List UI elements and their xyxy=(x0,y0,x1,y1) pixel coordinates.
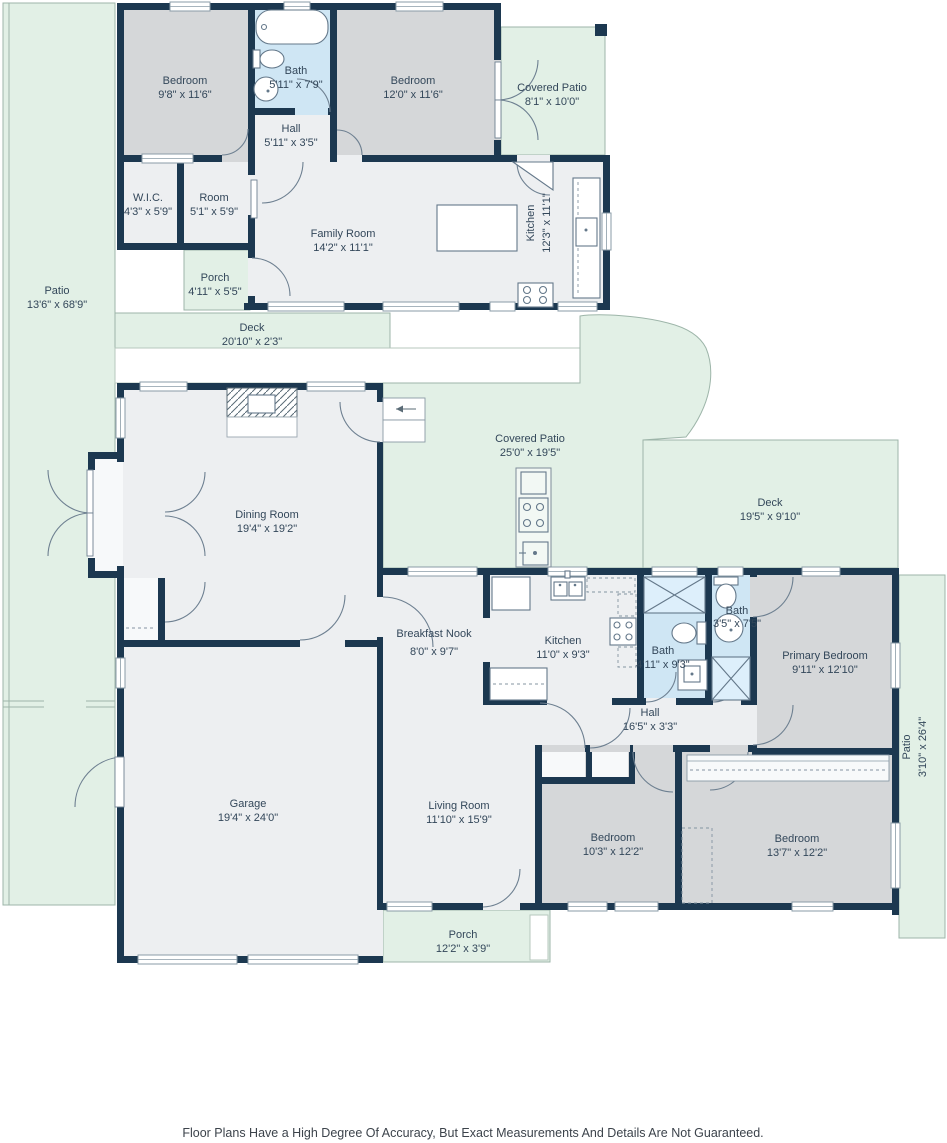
svg-text:5'11" x 7'9": 5'11" x 7'9" xyxy=(269,79,322,91)
vestibule-door-slab xyxy=(87,513,93,556)
svg-text:Deck: Deck xyxy=(757,497,783,509)
cooktop xyxy=(610,618,636,645)
svg-text:3'10" x 26'4": 3'10" x 26'4" xyxy=(917,717,929,777)
patio-post xyxy=(595,24,607,36)
kitchen-island xyxy=(437,205,517,251)
svg-text:Bath: Bath xyxy=(652,645,675,657)
svg-text:Bedroom: Bedroom xyxy=(163,75,208,87)
svg-text:11'10" x 15'9": 11'10" x 15'9" xyxy=(426,814,492,826)
floor-plan-page: Bedroom 9'8" x 11'6" Bath 5'11" x 7'9" B… xyxy=(0,0,947,1143)
svg-text:Kitchen: Kitchen xyxy=(545,635,582,647)
room-door-slab xyxy=(251,180,257,218)
toilet xyxy=(253,50,284,68)
toilet xyxy=(672,622,706,644)
shower xyxy=(644,577,705,613)
svg-text:13'7" x 12'2": 13'7" x 12'2" xyxy=(767,847,827,859)
dining-closet-floor xyxy=(124,578,158,640)
shower xyxy=(712,657,750,700)
french-door-slab xyxy=(495,62,501,100)
svg-text:Porch: Porch xyxy=(201,272,230,284)
vestibule-door-slab xyxy=(87,470,93,513)
svg-text:9'8" x 11'6": 9'8" x 11'6" xyxy=(158,89,211,101)
svg-text:12'2" x 3'9": 12'2" x 3'9" xyxy=(436,943,490,955)
svg-text:4'11" x 5'5": 4'11" x 5'5" xyxy=(188,286,241,298)
svg-text:Dining Room: Dining Room xyxy=(235,509,299,521)
svg-text:8'1" x 10'0": 8'1" x 10'0" xyxy=(525,96,579,108)
disclaimer-text: Floor Plans Have a High Degree Of Accura… xyxy=(182,1126,763,1140)
svg-text:Hall: Hall xyxy=(282,123,301,135)
svg-text:Bedroom: Bedroom xyxy=(391,75,436,87)
svg-text:10'3" x 12'2": 10'3" x 12'2" xyxy=(583,846,643,858)
svg-text:14'2" x 11'1": 14'2" x 11'1" xyxy=(313,242,373,254)
svg-text:13'6" x 68'9": 13'6" x 68'9" xyxy=(27,299,87,311)
svg-text:12'0" x 11'6": 12'0" x 11'6" xyxy=(383,89,443,101)
svg-text:16'5" x 3'3": 16'5" x 3'3" xyxy=(623,721,677,733)
svg-text:20'10" x 2'3": 20'10" x 2'3" xyxy=(222,336,282,348)
svg-text:Living Room: Living Room xyxy=(428,800,489,812)
outdoor-kitchen xyxy=(516,468,551,567)
svg-text:Kitchen: Kitchen xyxy=(525,205,537,242)
svg-text:Bath: Bath xyxy=(726,605,749,617)
svg-text:19'4" x 19'2": 19'4" x 19'2" xyxy=(237,523,297,535)
svg-text:25'0" x 19'5": 25'0" x 19'5" xyxy=(500,447,560,459)
svg-text:8'0" x 9'7": 8'0" x 9'7" xyxy=(410,646,458,658)
svg-text:W.I.C.: W.I.C. xyxy=(133,192,163,204)
kitchen-sink xyxy=(576,218,597,246)
svg-text:11'0" x 9'3": 11'0" x 9'3" xyxy=(536,649,589,661)
svg-text:Deck: Deck xyxy=(239,322,265,334)
svg-text:Breakfast Nook: Breakfast Nook xyxy=(396,628,472,640)
floor-plan-canvas: Bedroom 9'8" x 11'6" Bath 5'11" x 7'9" B… xyxy=(0,0,947,1143)
svg-text:Patio: Patio xyxy=(901,734,913,759)
hall-closet-1-floor xyxy=(542,752,585,777)
svg-text:Garage: Garage xyxy=(230,798,267,810)
toilet xyxy=(714,577,738,608)
svg-text:4'11" x 9'3": 4'11" x 9'3" xyxy=(636,659,689,671)
hall-closet-2-floor xyxy=(592,752,628,777)
svg-text:12'3" x 11'1": 12'3" x 11'1" xyxy=(541,193,553,253)
svg-text:19'5" x 9'10": 19'5" x 9'10" xyxy=(740,511,800,523)
svg-text:Covered Patio: Covered Patio xyxy=(517,82,587,94)
deck-lower-step xyxy=(115,348,580,383)
garage-patio-door-slab xyxy=(115,757,124,807)
svg-text:5'11" x 3'5": 5'11" x 3'5" xyxy=(264,137,317,149)
svg-text:19'4" x 24'0": 19'4" x 24'0" xyxy=(218,812,278,824)
porch-steps xyxy=(530,915,548,960)
svg-text:3'5" x 7'5": 3'5" x 7'5" xyxy=(713,618,761,630)
french-door-slab xyxy=(495,100,501,138)
svg-text:9'11" x 12'10": 9'11" x 12'10" xyxy=(792,664,858,676)
svg-text:Bedroom: Bedroom xyxy=(775,833,820,845)
svg-text:Covered Patio: Covered Patio xyxy=(495,433,565,445)
svg-text:Primary Bedroom: Primary Bedroom xyxy=(782,650,868,662)
svg-text:Hall: Hall xyxy=(641,707,660,719)
svg-text:Patio: Patio xyxy=(44,285,69,297)
entry-steps xyxy=(383,398,425,442)
svg-text:Family Room: Family Room xyxy=(311,228,376,240)
svg-text:Room: Room xyxy=(199,192,228,204)
svg-text:Bedroom: Bedroom xyxy=(591,832,636,844)
stove xyxy=(518,283,553,307)
family-room-kitchen-floor xyxy=(248,155,610,310)
svg-text:5'1" x 5'9": 5'1" x 5'9" xyxy=(190,206,238,218)
svg-text:4'3" x 5'9": 4'3" x 5'9" xyxy=(124,206,172,218)
svg-text:Porch: Porch xyxy=(449,929,478,941)
svg-text:Bath: Bath xyxy=(285,65,308,77)
refrigerator xyxy=(492,577,530,610)
closet xyxy=(687,755,889,781)
fireplace xyxy=(227,388,297,437)
